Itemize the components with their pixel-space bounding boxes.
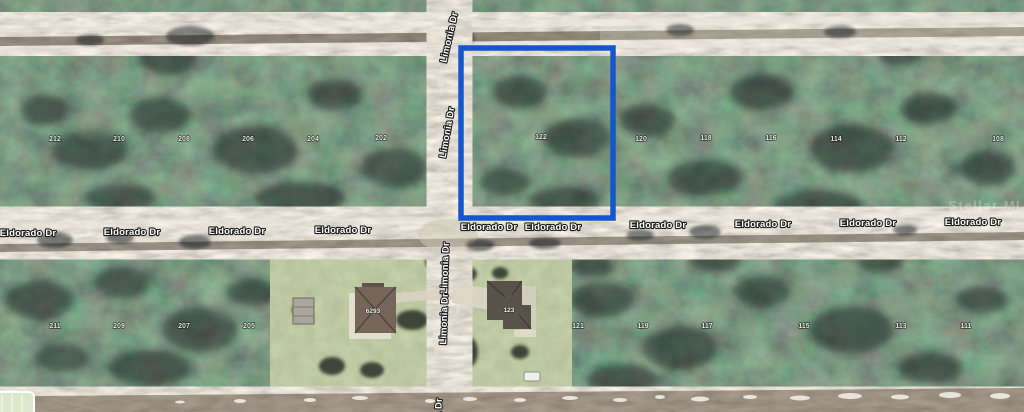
parcel-number: 117	[701, 323, 712, 330]
parcel-number: 121	[572, 323, 584, 330]
street-label-eldorado: Eldorado Dr	[0, 228, 56, 239]
parcel-number: 212	[49, 136, 61, 143]
house-number: 6293	[366, 308, 381, 315]
parcel-number: 211	[49, 323, 60, 330]
parcel-number: 111	[961, 323, 972, 330]
parcel-number: 205	[243, 323, 255, 330]
parcel-number: 108	[992, 136, 1004, 143]
satellite-map: Eldorado Dr Eldorado Dr Eldorado Dr Eldo…	[0, 0, 1024, 412]
parcel-number: 112	[895, 136, 906, 143]
parcel-number: 202	[375, 135, 387, 142]
street-label-eldorado: Eldorado Dr	[104, 227, 161, 238]
parcel-number: 208	[178, 136, 190, 143]
parcel-number: 209	[113, 323, 125, 330]
parcel-number: 206	[242, 136, 254, 143]
parcel-number-highlighted: 122	[535, 134, 547, 141]
street-label-eldorado: Eldorado Dr	[945, 217, 1002, 228]
shed	[293, 298, 314, 324]
parcel-number: 204	[307, 136, 319, 143]
parked-vehicle	[524, 372, 540, 381]
parcel-number: 114	[830, 136, 841, 143]
parcel-number: 210	[113, 136, 125, 143]
street-label-eldorado: Eldorado Dr	[735, 219, 792, 230]
parcel-number: 113	[895, 323, 906, 330]
parcel-number: 119	[637, 323, 648, 330]
street-label-limonia: Limonia Dr	[439, 242, 452, 294]
street-label-eldorado: Eldorado Dr	[840, 218, 897, 229]
street-label-eldorado: Eldorado Dr	[630, 220, 687, 231]
street-label-limonia: Limonia Dr	[438, 293, 451, 345]
street-label-eldorado: Eldorado Dr	[315, 225, 372, 236]
map-canvas: Eldorado Dr Eldorado Dr Eldorado Dr Eldo…	[0, 0, 1024, 412]
parcel-number: 120	[635, 136, 647, 143]
street-label-eldorado: Eldorado Dr	[461, 222, 518, 233]
parcel-number: 207	[178, 323, 190, 330]
mls-watermark: Stellar MLS	[948, 198, 1024, 213]
corner-building	[0, 392, 34, 412]
parcel-number: 118	[700, 135, 711, 142]
parcel-number: 116	[765, 135, 776, 142]
house-number: 123	[504, 307, 515, 314]
street-label-eldorado: Eldorado Dr	[525, 222, 582, 233]
parcel-number: 115	[798, 323, 809, 330]
street-label-eldorado: Eldorado Dr	[209, 226, 266, 237]
street-label-limonia-partial: Limonia Dr	[432, 398, 445, 412]
